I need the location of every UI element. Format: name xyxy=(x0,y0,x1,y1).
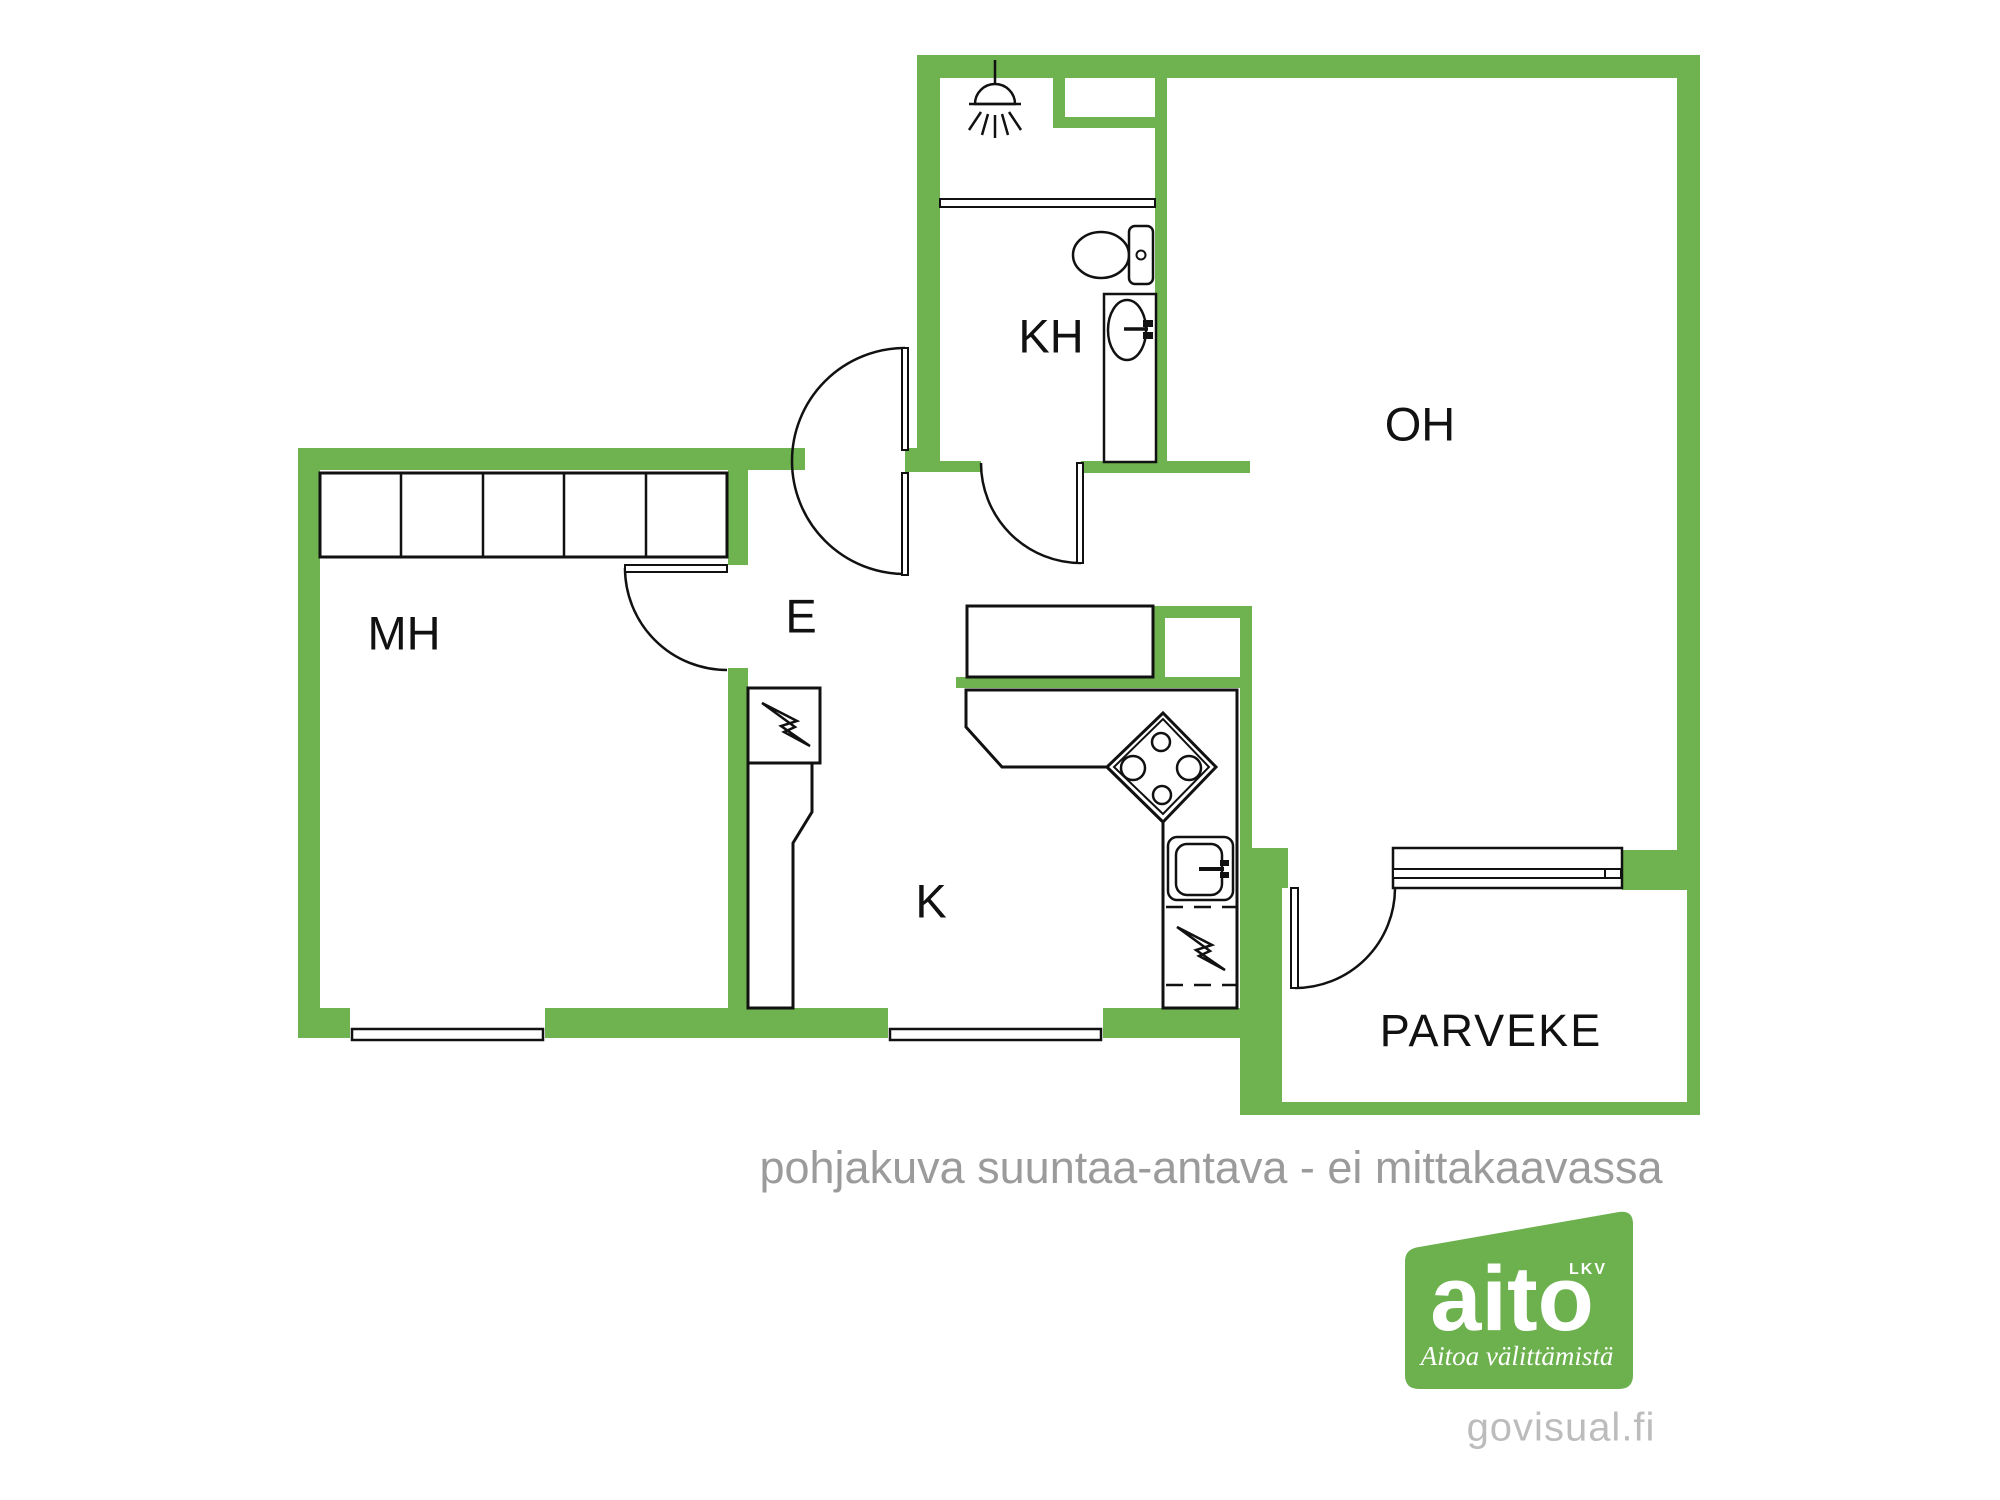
wall-balcony-left xyxy=(1240,888,1282,1115)
wall-entry-stub xyxy=(905,448,940,472)
washbasin-icon xyxy=(1104,294,1156,462)
room-label-oh: OH xyxy=(1385,397,1456,452)
entrance-door xyxy=(792,348,908,575)
kitchen-sink-icon xyxy=(1168,837,1233,900)
wall-duct2-top xyxy=(1153,606,1252,618)
wall-oh-left-lower xyxy=(1240,606,1252,888)
wall-balcony-right xyxy=(1687,890,1700,1115)
wall-divider-bottom xyxy=(728,668,748,1008)
room-label-e: E xyxy=(785,589,816,644)
wall-duct2-left xyxy=(1153,618,1165,677)
mh-door xyxy=(625,565,727,670)
wall-e-top xyxy=(298,448,805,470)
floorplan-image: aito LKV Aitoa välittämistä KH OH E MH K… xyxy=(0,0,2000,1500)
wall-window-block xyxy=(1622,850,1700,890)
fixtures xyxy=(320,60,1237,1008)
wall-left xyxy=(298,448,320,1038)
oh-balcony-window-latch xyxy=(1605,869,1621,878)
kitchen-tall-cabinet xyxy=(748,763,812,1008)
wall-divider-top xyxy=(728,470,748,565)
floorplan-drawing: aito LKV Aitoa välittämistä xyxy=(0,0,2000,1500)
mh-window xyxy=(352,1029,543,1040)
shower-partition xyxy=(940,199,1155,207)
toilet-icon xyxy=(1073,226,1153,284)
wall-kh-left xyxy=(917,55,940,450)
sideboard xyxy=(967,606,1153,677)
aito-logo-lkv: LKV xyxy=(1569,1261,1607,1278)
wall-duct1-bottom xyxy=(1053,117,1167,128)
room-label-k: K xyxy=(915,874,946,929)
room-label-mh: MH xyxy=(367,606,440,661)
wall-bottom-2 xyxy=(545,1008,888,1038)
balcony-door xyxy=(1291,888,1395,988)
wall-kitchen-top xyxy=(956,677,1252,688)
wall-bottom-3 xyxy=(1103,1008,1252,1038)
aito-logo: aito LKV Aitoa välittämistä xyxy=(1405,1212,1633,1389)
wall-balcony-bottom xyxy=(1240,1102,1700,1115)
k-window xyxy=(890,1029,1101,1040)
disclaimer-caption: pohjakuva suuntaa-antava - ei mittakaava… xyxy=(759,1142,1662,1194)
wall-bottom-1 xyxy=(298,1008,350,1038)
wall-top xyxy=(917,55,1700,78)
aito-logo-tagline: Aitoa välittämistä xyxy=(1419,1341,1614,1371)
govisual-watermark: govisual.fi xyxy=(1467,1406,1656,1451)
oh-balcony-window-glass xyxy=(1393,869,1622,878)
closet xyxy=(320,473,727,557)
kh-door xyxy=(981,463,1083,563)
room-label-parveke: PARVEKE xyxy=(1380,1005,1602,1057)
wall-kh-bottom-left xyxy=(940,461,981,472)
walls xyxy=(298,55,1700,1115)
wall-oh-right xyxy=(1677,55,1700,850)
wall-corner-block xyxy=(1240,848,1288,888)
room-label-kh: KH xyxy=(1018,309,1083,364)
